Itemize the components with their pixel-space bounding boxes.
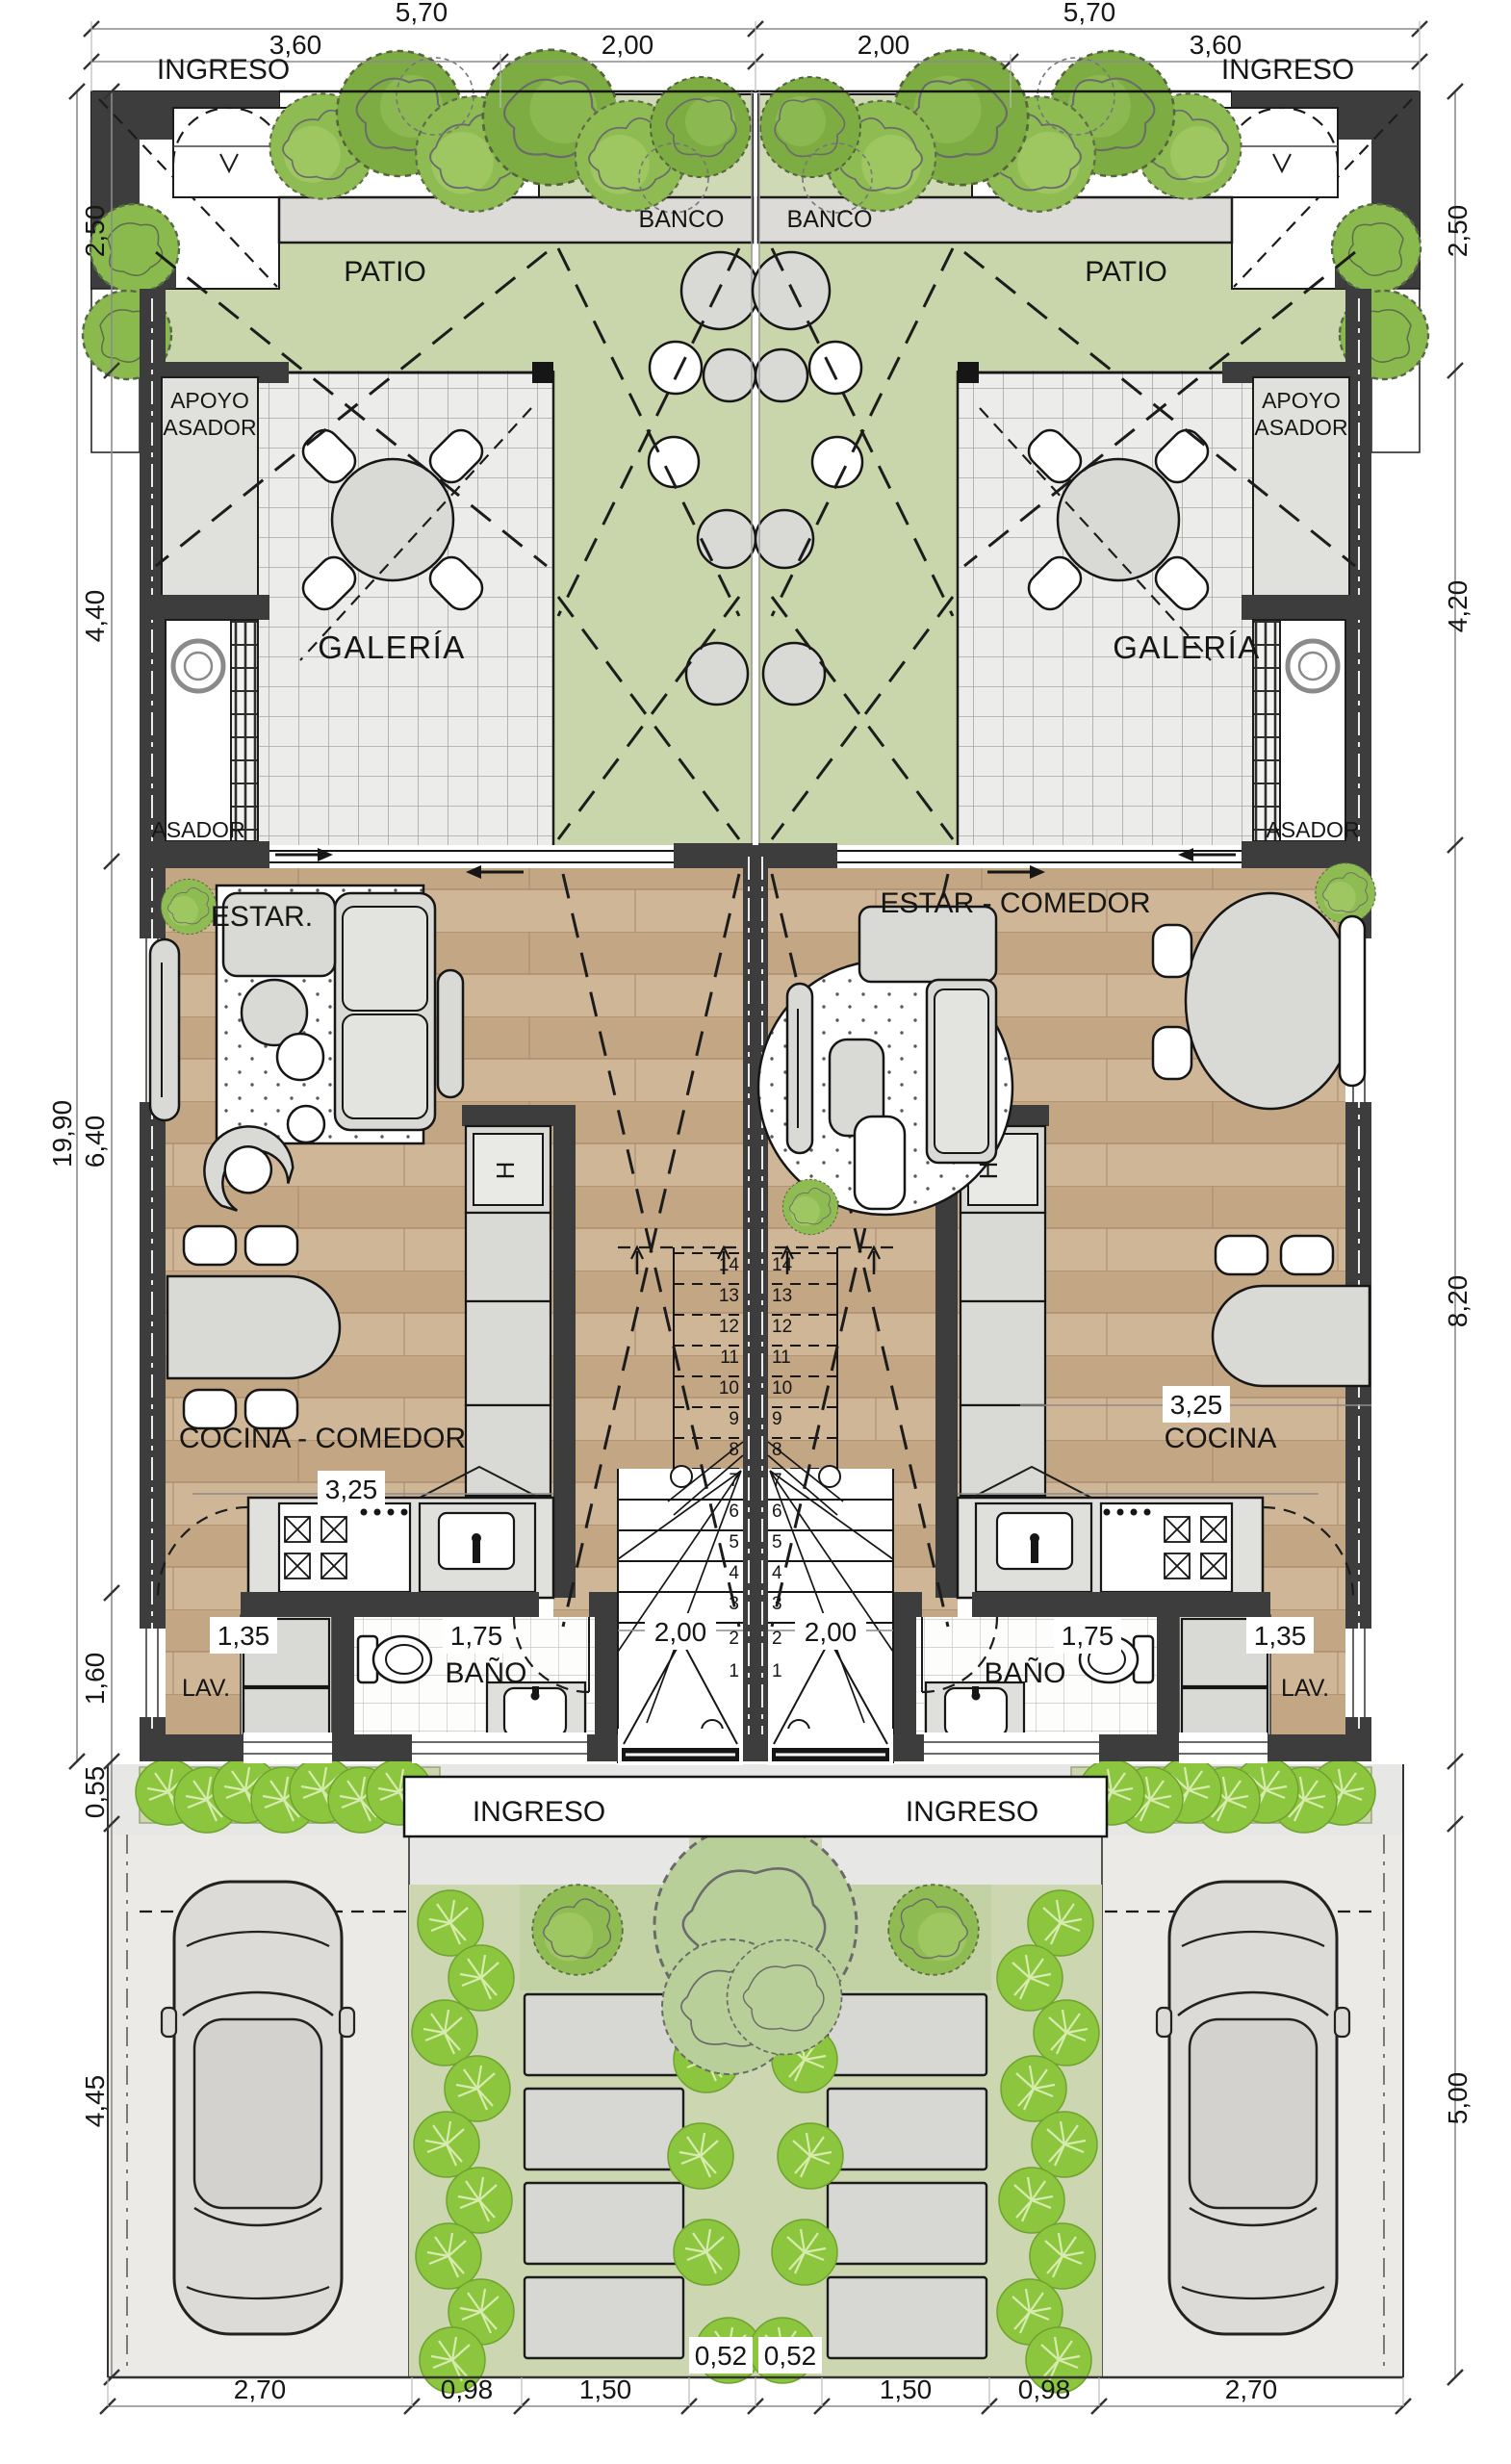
- label-galeria-right: GALERÍA: [1113, 629, 1261, 665]
- dim-left-total: 19,90: [47, 1100, 77, 1168]
- coffee-table: [855, 1116, 905, 1209]
- label-ingreso-top-left: INGRESO: [157, 54, 290, 86]
- sideboard: [150, 939, 179, 1120]
- floor-plan-drawing: 5,70 5,70 3,60 2,00 2,00 3,60 INGRESO IN…: [0, 0, 1511, 2464]
- dim-left-galeria: 4,40: [80, 590, 110, 643]
- stair-step-number: 14: [719, 1255, 740, 1275]
- console-table: [438, 970, 463, 1097]
- coffee-table: [277, 1034, 323, 1080]
- console-table: [787, 984, 812, 1153]
- label-banio-left: BAÑO: [445, 1656, 526, 1689]
- dim-left-living: 6,40: [80, 1116, 110, 1168]
- label-cocina: COCINA: [1165, 1423, 1277, 1454]
- stair-step-number: 3: [772, 1594, 782, 1614]
- label-patio-left: PATIO: [344, 256, 426, 288]
- dim-bottom: 0,52: [695, 2341, 748, 2371]
- stair-step-number: 3: [729, 1594, 739, 1614]
- floor-plan-page: 5,70 5,70 3,60 2,00 2,00 3,60 INGRESO IN…: [0, 0, 1511, 2464]
- faucet: [473, 1540, 480, 1563]
- dim-right-living: 8,20: [1443, 1275, 1473, 1328]
- stair-step-number: 1: [729, 1661, 739, 1681]
- stair-step-number: 13: [772, 1286, 792, 1306]
- stair-step-number: 9: [729, 1409, 739, 1429]
- stair-step-number: 8: [772, 1440, 782, 1460]
- stair-step-number: 5: [772, 1532, 782, 1553]
- stepping-stone-circle: [686, 643, 748, 705]
- stair-step-number: 11: [720, 1347, 739, 1368]
- stair-step-number: 8: [729, 1440, 739, 1460]
- sliding-door: [248, 851, 674, 862]
- stair-step-number: 12: [772, 1317, 792, 1337]
- stepping-stone-circle: [650, 342, 702, 394]
- label-ingreso-top-right: INGRESO: [1221, 54, 1354, 86]
- label-cocina-comedor: COCINA - COMEDOR: [179, 1423, 466, 1454]
- stair-step-number: 4: [729, 1563, 739, 1583]
- kitchen-cabinet: [466, 1301, 551, 1405]
- dim-kitchen-left: 3,25: [325, 1475, 378, 1504]
- stair-step-number: 2: [729, 1629, 739, 1649]
- side-table: [288, 1106, 324, 1142]
- stair-step-number: 13: [719, 1286, 739, 1306]
- dim-lav-right: 1,35: [1254, 1621, 1307, 1651]
- label-fridge-left: H: [491, 1162, 520, 1180]
- asador-grate: [231, 620, 258, 841]
- label-estar: ESTAR.: [211, 901, 313, 933]
- dim-bottom: 1,50: [579, 2374, 632, 2404]
- dim-left-hedge: 0,55: [80, 1766, 110, 1819]
- dim-right-patio: 2,50: [1443, 205, 1473, 258]
- stair-step-number: 4: [772, 1563, 782, 1583]
- dim-kitchen-right: 3,25: [1170, 1390, 1223, 1420]
- label-banio-right: BAÑO: [984, 1656, 1065, 1689]
- label-fridge-right: H: [974, 1162, 1003, 1180]
- dim-top-total-right: 5,70: [1063, 0, 1116, 27]
- label-lav-left: LAV.: [182, 1675, 230, 1702]
- dim-bottom: 0,98: [1018, 2374, 1071, 2404]
- label-apoyo-asador-left: APOYO: [170, 388, 249, 413]
- dim-right-galeria: 4,20: [1443, 580, 1473, 633]
- dim-top-sub: 2,00: [858, 30, 910, 60]
- stair-step-number: 2: [772, 1629, 782, 1649]
- stair-step-number: 5: [729, 1532, 739, 1553]
- label-galeria-left: GALERÍA: [318, 629, 466, 665]
- label-apoyo-asador-left: ASADOR: [163, 415, 256, 440]
- dim-bath-right: 1,75: [1062, 1621, 1114, 1651]
- kitchen-table: [1213, 1286, 1370, 1386]
- dim-bottom: 2,70: [234, 2374, 287, 2404]
- label-banco-left: BANCO: [639, 206, 725, 233]
- kitchen-cabinet: [466, 1213, 551, 1301]
- label-apoyo-asador-right: ASADOR: [1254, 415, 1347, 440]
- dim-bottom: 0,98: [441, 2374, 494, 2404]
- stair-step-number: 9: [772, 1409, 782, 1429]
- dim-right-yard: 5,00: [1443, 2072, 1473, 2125]
- label-ingreso-bottom-right: INGRESO: [906, 1796, 1038, 1828]
- label-lav-right: LAV.: [1281, 1675, 1329, 1702]
- dim-stair-left: 2,00: [654, 1617, 707, 1647]
- label-asador-left: ASADOR: [151, 817, 244, 842]
- dim-lav-left: 1,35: [218, 1621, 270, 1651]
- label-estar-comedor: ESTAR - COMEDOR: [880, 887, 1150, 919]
- dining-table-oval: [1186, 893, 1355, 1109]
- stair-step-number: 11: [772, 1347, 791, 1368]
- dim-left-yard: 4,45: [80, 2075, 110, 2128]
- stair-step-number: 7: [772, 1471, 782, 1491]
- dim-top-total-left: 5,70: [396, 0, 448, 27]
- stair-step-number: 10: [772, 1378, 792, 1399]
- label-ingreso-bottom-left: INGRESO: [473, 1796, 605, 1828]
- stair-step-number: 12: [719, 1317, 739, 1337]
- stair-step-number: 14: [772, 1255, 793, 1275]
- stair-step-number: 7: [729, 1471, 739, 1491]
- dim-top-sub: 2,00: [602, 30, 654, 60]
- dim-left-service: 1,60: [80, 1653, 110, 1706]
- dim-left-patio: 2,50: [80, 205, 110, 258]
- dim-bath-left: 1,75: [450, 1621, 503, 1651]
- dim-bottom: 0,52: [764, 2341, 817, 2371]
- bench: [1340, 916, 1365, 1086]
- label-patio-right: PATIO: [1085, 256, 1167, 288]
- label-asador-right: ASADOR: [1266, 817, 1359, 842]
- stepping-stone-circle: [704, 349, 755, 401]
- stair-step-number: 10: [719, 1378, 739, 1399]
- stepping-stone-circle: [698, 510, 755, 568]
- stair-step-number: 6: [729, 1501, 739, 1522]
- label-apoyo-asador-right: APOYO: [1262, 388, 1341, 413]
- label-banco-right: BANCO: [787, 206, 873, 233]
- dim-stair-right: 2,00: [805, 1617, 858, 1647]
- dim-bottom: 2,70: [1225, 2374, 1278, 2404]
- dim-bottom: 1,50: [880, 2374, 933, 2404]
- stair-step-number: 6: [772, 1501, 782, 1522]
- stair-step-number: 1: [772, 1661, 782, 1681]
- dining-table: [167, 1276, 340, 1378]
